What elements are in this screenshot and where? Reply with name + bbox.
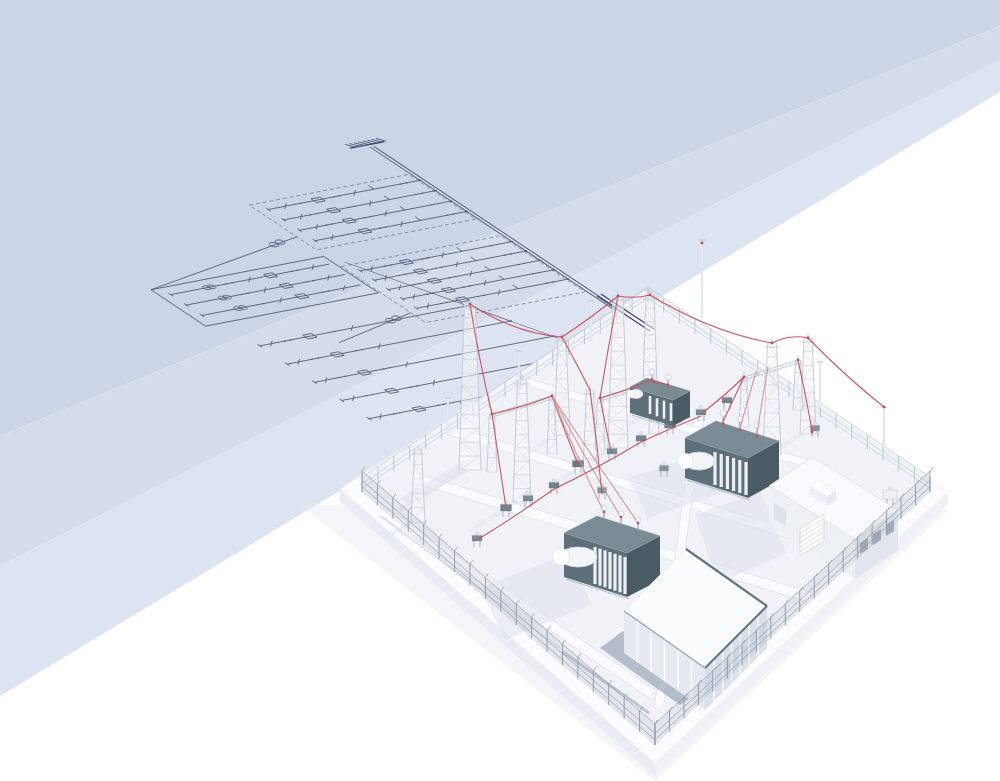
scene-canvas (0, 0, 1000, 781)
substation-illustration (0, 0, 1000, 781)
